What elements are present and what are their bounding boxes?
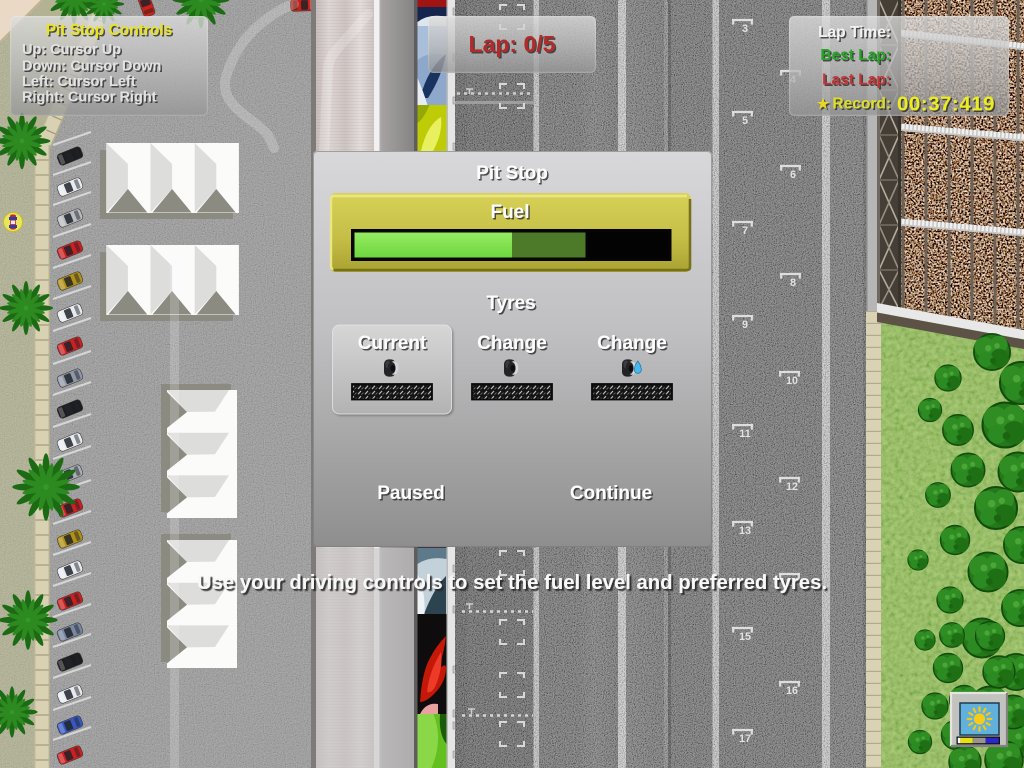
- svg-text:Fuel: Fuel: [490, 202, 529, 223]
- svg-text:10: 10: [786, 375, 798, 387]
- svg-text:Right: Cursor Right: Right: Cursor Right: [22, 90, 157, 106]
- svg-text:16: 16: [786, 685, 798, 697]
- svg-text:00:37:419: 00:37:419: [897, 93, 995, 116]
- svg-text:6: 6: [790, 169, 796, 181]
- svg-text:17: 17: [739, 733, 751, 745]
- svg-text:7: 7: [742, 225, 748, 237]
- svg-text:8: 8: [790, 277, 796, 289]
- svg-text:13: 13: [739, 525, 751, 537]
- svg-text:Change: Change: [477, 333, 547, 354]
- svg-text:Pit Stop Controls: Pit Stop Controls: [46, 22, 173, 39]
- svg-text:Left: Cursor Left: Left: Cursor Left: [22, 74, 136, 90]
- svg-text:3: 3: [742, 23, 748, 35]
- svg-text:12: 12: [786, 481, 798, 493]
- svg-text:Record:: Record:: [832, 96, 891, 113]
- svg-text:15: 15: [739, 631, 751, 643]
- svg-text:Down: Cursor Down: Down: Cursor Down: [22, 59, 161, 75]
- svg-text:Continue: Continue: [570, 483, 652, 504]
- svg-text:Up: Cursor Up: Up: Cursor Up: [22, 42, 121, 58]
- svg-text:5: 5: [742, 115, 748, 127]
- svg-text:Last Lap:: Last Lap:: [822, 72, 891, 89]
- svg-text:Best Lap:: Best Lap:: [820, 47, 891, 64]
- svg-text:11: 11: [739, 428, 750, 440]
- svg-text:Lap Time:: Lap Time:: [818, 24, 891, 41]
- svg-text:Paused: Paused: [377, 483, 445, 504]
- svg-text:9: 9: [742, 319, 748, 331]
- svg-text:Change: Change: [597, 333, 667, 354]
- svg-text:Use your driving controls to s: Use your driving controls to set the fue…: [197, 572, 827, 594]
- svg-text:★: ★: [817, 96, 830, 112]
- svg-text:Tyres: Tyres: [486, 293, 535, 314]
- svg-text:Current: Current: [358, 333, 427, 354]
- svg-text:Pit Stop: Pit Stop: [476, 163, 548, 184]
- svg-text:Lap: 0/5: Lap: 0/5: [469, 31, 556, 57]
